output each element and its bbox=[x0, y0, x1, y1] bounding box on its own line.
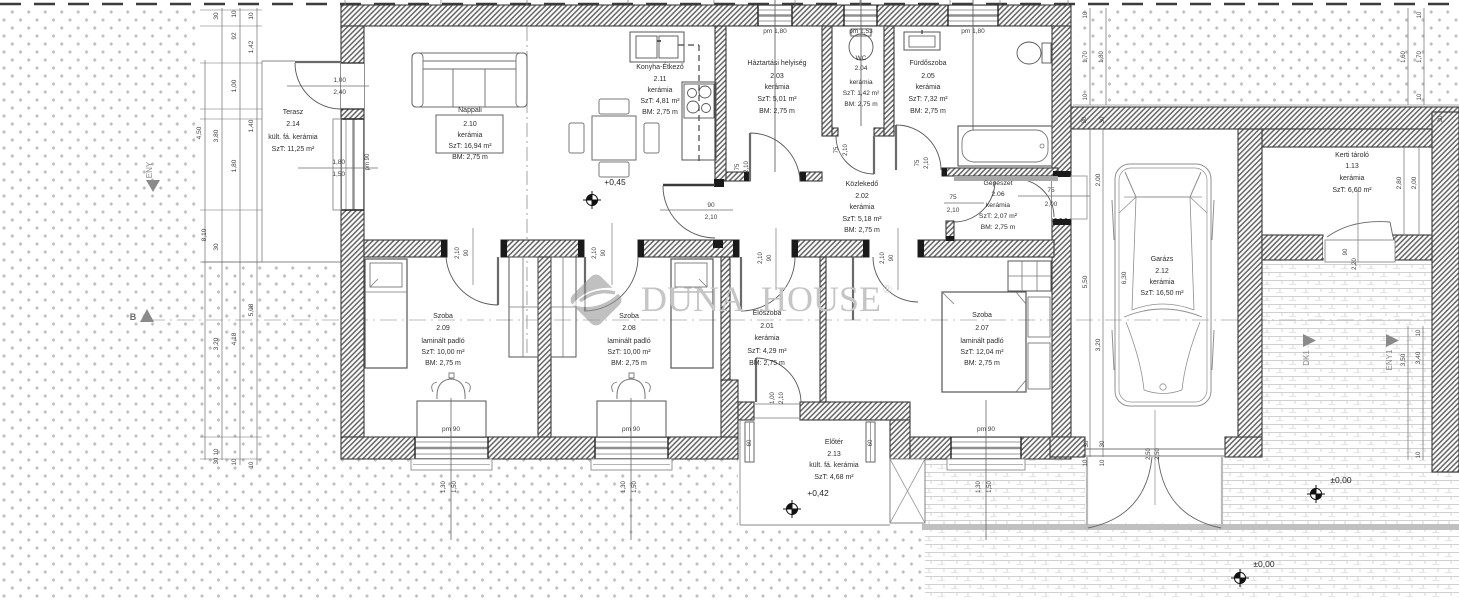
svg-text:2.13: 2.13 bbox=[827, 451, 841, 458]
svg-text:1,30: 1,30 bbox=[976, 481, 982, 493]
svg-text:1,60: 1,60 bbox=[1401, 51, 1407, 63]
svg-text:60: 60 bbox=[868, 439, 874, 446]
svg-text:1,70: 1,70 bbox=[1083, 51, 1089, 63]
svg-text:Szoba: Szoba bbox=[619, 313, 639, 320]
svg-text:1,80: 1,80 bbox=[1099, 51, 1105, 63]
svg-text:2.09: 2.09 bbox=[436, 325, 450, 332]
svg-text:laminált padló: laminált padló bbox=[421, 338, 464, 345]
svg-text:90: 90 bbox=[889, 254, 895, 261]
svg-text:1,00: 1,00 bbox=[333, 77, 346, 84]
svg-text:Nappali: Nappali bbox=[458, 107, 482, 114]
svg-text:75: 75 bbox=[915, 159, 921, 166]
svg-text:1,40: 1,40 bbox=[248, 119, 255, 132]
svg-text:kült. fá. kerámia: kült. fá. kerámia bbox=[268, 134, 318, 141]
svg-text:BM: 2,75 m: BM: 2,75 m bbox=[759, 108, 795, 115]
svg-text:DUNA: DUNA bbox=[641, 279, 745, 319]
svg-text:SzT: 5,18 m²: SzT: 5,18 m² bbox=[842, 216, 882, 223]
svg-text:75: 75 bbox=[735, 163, 741, 170]
svg-text:BM: 2,75 m: BM: 2,75 m bbox=[749, 360, 785, 367]
svg-text:BM: 2,75 m: BM: 2,75 m bbox=[964, 360, 1000, 367]
svg-text:ENY: ENY bbox=[145, 161, 154, 178]
svg-text:30: 30 bbox=[1100, 440, 1106, 447]
svg-text:kerámia: kerámia bbox=[1340, 175, 1365, 182]
svg-text:10: 10 bbox=[231, 10, 238, 18]
svg-text:B: B bbox=[130, 312, 137, 322]
svg-text:2.04: 2.04 bbox=[855, 65, 868, 72]
svg-text:SzT: 7,32 m²: SzT: 7,32 m² bbox=[908, 96, 948, 103]
svg-text:BM: 2,75 m: BM: 2,75 m bbox=[981, 224, 1016, 231]
svg-text:kült. fá. kerámia: kült. fá. kerámia bbox=[809, 462, 859, 469]
svg-text:±0,00: ±0,00 bbox=[1330, 475, 1351, 485]
svg-text:Garázs: Garázs bbox=[1151, 256, 1174, 263]
svg-text:2.06: 2.06 bbox=[991, 191, 1004, 198]
svg-text:kerámia: kerámia bbox=[648, 87, 673, 94]
svg-text:Közlekedő: Közlekedő bbox=[846, 181, 879, 188]
svg-text:Fürdőszoba: Fürdőszoba bbox=[910, 60, 947, 67]
svg-text:Kerti tároló: Kerti tároló bbox=[1335, 152, 1369, 159]
svg-text:Szoba: Szoba bbox=[972, 312, 992, 319]
svg-text:2,10: 2,10 bbox=[744, 161, 750, 173]
svg-text:2.08: 2.08 bbox=[622, 325, 636, 332]
svg-text:+0,45: +0,45 bbox=[604, 177, 626, 187]
svg-text:2,10: 2,10 bbox=[924, 157, 930, 169]
svg-text:Háztartási helyiség: Háztartási helyiség bbox=[747, 60, 806, 67]
svg-text:SzT: 16,94 m²: SzT: 16,94 m² bbox=[448, 143, 492, 150]
svg-text:kerámia: kerámia bbox=[755, 335, 780, 342]
svg-text:2,00: 2,00 bbox=[1045, 201, 1058, 208]
svg-text:10: 10 bbox=[1417, 93, 1423, 100]
svg-text:2,10: 2,10 bbox=[779, 392, 785, 404]
svg-text:30: 30 bbox=[213, 12, 220, 20]
svg-text:kerámia: kerámia bbox=[916, 84, 941, 91]
svg-text:10: 10 bbox=[1100, 459, 1106, 466]
svg-text:90: 90 bbox=[1343, 248, 1349, 255]
svg-text:laminált padló: laminált padló bbox=[960, 338, 1003, 345]
svg-text:Gépészet: Gépészet bbox=[983, 180, 1012, 187]
svg-text:90: 90 bbox=[601, 249, 607, 256]
svg-text:kerámia: kerámia bbox=[849, 79, 873, 86]
svg-text:10: 10 bbox=[1417, 11, 1423, 18]
svg-text:2.03: 2.03 bbox=[770, 73, 784, 80]
svg-text:BM: 2,75 m: BM: 2,75 m bbox=[844, 101, 877, 108]
svg-text:SzT: 1,42 m²: SzT: 1,42 m² bbox=[843, 90, 880, 97]
svg-text:BM: 2,75 m: BM: 2,75 m bbox=[452, 154, 488, 161]
svg-text:ENY1: ENY1 bbox=[1385, 349, 1394, 370]
svg-text:60: 60 bbox=[747, 439, 753, 446]
svg-text:2.12: 2.12 bbox=[1155, 268, 1169, 275]
svg-text:2,00: 2,00 bbox=[1095, 173, 1102, 186]
svg-text:10: 10 bbox=[214, 448, 220, 455]
svg-text:2.10: 2.10 bbox=[463, 121, 477, 128]
svg-text:90: 90 bbox=[767, 254, 773, 261]
svg-text:1,50: 1,50 bbox=[452, 481, 458, 493]
svg-text:30: 30 bbox=[1082, 116, 1088, 123]
svg-text:SzT: 5,01 m²: SzT: 5,01 m² bbox=[757, 96, 797, 103]
svg-text:SzT: 12,04 m²: SzT: 12,04 m² bbox=[960, 349, 1004, 356]
svg-text:kerámia: kerámia bbox=[850, 204, 875, 211]
svg-text:75: 75 bbox=[949, 194, 957, 201]
svg-text:10: 10 bbox=[1083, 11, 1089, 18]
svg-text:2,10: 2,10 bbox=[947, 207, 960, 214]
svg-text:1,70: 1,70 bbox=[1417, 51, 1423, 63]
svg-text:Terasz: Terasz bbox=[283, 109, 304, 116]
svg-text:4,50: 4,50 bbox=[196, 126, 203, 139]
svg-text:2,40: 2,40 bbox=[333, 89, 346, 96]
svg-text:Konyha-Étkező: Konyha-Étkező bbox=[636, 62, 684, 71]
svg-text:±0,00: ±0,00 bbox=[1253, 559, 1274, 569]
svg-text:75: 75 bbox=[834, 146, 840, 153]
svg-text:8,10: 8,10 bbox=[201, 228, 208, 241]
svg-text:kerámia: kerámia bbox=[765, 84, 790, 91]
svg-text:75: 75 bbox=[1047, 187, 1055, 194]
svg-text:kerámia: kerámia bbox=[458, 132, 483, 139]
svg-text:5,08: 5,08 bbox=[248, 303, 255, 316]
svg-text:BM: 2,75 m: BM: 2,75 m bbox=[844, 227, 880, 234]
svg-text:1,30: 1,30 bbox=[621, 481, 627, 493]
svg-text:10: 10 bbox=[1083, 93, 1089, 100]
svg-text:2,10: 2,10 bbox=[880, 252, 886, 264]
svg-text:2,10: 2,10 bbox=[592, 247, 598, 259]
svg-text:3,20: 3,20 bbox=[213, 337, 220, 350]
svg-text:®: ® bbox=[883, 282, 892, 296]
svg-text:SzT: 16,50 m²: SzT: 16,50 m² bbox=[1140, 290, 1184, 297]
svg-text:2.14: 2.14 bbox=[286, 121, 300, 128]
svg-text:2,50: 2,50 bbox=[1146, 448, 1152, 460]
svg-text:90: 90 bbox=[707, 202, 715, 209]
svg-text:kerámia: kerámia bbox=[1150, 279, 1175, 286]
svg-text:SzT: 4,68 m²: SzT: 4,68 m² bbox=[814, 474, 854, 481]
svg-text:2,10: 2,10 bbox=[843, 144, 849, 156]
svg-text:SzT: 11,25 m²: SzT: 11,25 m² bbox=[272, 146, 315, 153]
svg-text:10: 10 bbox=[1416, 451, 1422, 458]
svg-text:1,50: 1,50 bbox=[632, 481, 638, 493]
svg-text:2,10: 2,10 bbox=[455, 247, 461, 259]
svg-text:10: 10 bbox=[232, 458, 238, 465]
svg-text:2,10: 2,10 bbox=[758, 252, 764, 264]
svg-text:30: 30 bbox=[214, 457, 220, 464]
svg-text:1,42: 1,42 bbox=[248, 40, 255, 53]
svg-text:SzT: 4,29 m²: SzT: 4,29 m² bbox=[747, 348, 787, 355]
svg-text:1,80: 1,80 bbox=[332, 159, 345, 166]
svg-text:2,00: 2,00 bbox=[1411, 176, 1418, 189]
svg-text:30: 30 bbox=[1438, 115, 1444, 122]
svg-text:1.13: 1.13 bbox=[1345, 163, 1359, 170]
svg-text:2.07: 2.07 bbox=[975, 325, 989, 332]
svg-text:2,20: 2,20 bbox=[1352, 258, 1358, 270]
svg-text:1,30: 1,30 bbox=[441, 481, 447, 493]
svg-text:pm 90: pm 90 bbox=[365, 153, 371, 170]
svg-text:SzT: 10,00 m²: SzT: 10,00 m² bbox=[421, 349, 465, 356]
svg-text:2.02: 2.02 bbox=[855, 193, 869, 200]
svg-text:pm 1,80: pm 1,80 bbox=[763, 28, 787, 35]
svg-text:2.11: 2.11 bbox=[653, 76, 666, 83]
svg-text:2,10: 2,10 bbox=[705, 214, 718, 221]
svg-text:DK1: DK1 bbox=[1302, 350, 1311, 366]
svg-text:WC: WC bbox=[856, 55, 867, 62]
svg-text:BM: 2,75 m: BM: 2,75 m bbox=[611, 360, 647, 367]
svg-text:92: 92 bbox=[231, 32, 238, 40]
svg-text:BM: 2,75 m: BM: 2,75 m bbox=[425, 360, 461, 367]
svg-text:5,50: 5,50 bbox=[1082, 275, 1089, 288]
svg-text:laminált padló: laminált padló bbox=[607, 338, 650, 345]
svg-text:6,30: 6,30 bbox=[1121, 271, 1128, 284]
svg-text:2,50: 2,50 bbox=[1155, 448, 1161, 460]
svg-text:Szoba: Szoba bbox=[433, 313, 453, 320]
svg-text:10: 10 bbox=[249, 461, 255, 468]
svg-text:SzT: 10,00 m²: SzT: 10,00 m² bbox=[607, 349, 651, 356]
svg-text:pm 1,53: pm 1,53 bbox=[849, 28, 873, 35]
svg-text:1,80: 1,80 bbox=[231, 159, 238, 172]
svg-text:30: 30 bbox=[1100, 116, 1106, 123]
svg-text:Előtér: Előtér bbox=[825, 439, 844, 446]
svg-text:30: 30 bbox=[1084, 440, 1090, 447]
svg-text:90: 90 bbox=[464, 249, 470, 256]
svg-text:2.01: 2.01 bbox=[760, 323, 774, 330]
svg-text:10: 10 bbox=[1416, 329, 1422, 336]
svg-text:3,50: 3,50 bbox=[1400, 353, 1407, 366]
svg-text:SzT: 4,81 m²: SzT: 4,81 m² bbox=[640, 98, 680, 105]
svg-text:HOUSE: HOUSE bbox=[761, 279, 881, 319]
svg-text:SzT: 6,60 m²: SzT: 6,60 m² bbox=[1332, 187, 1372, 194]
svg-text:10: 10 bbox=[1083, 459, 1089, 466]
svg-text:30: 30 bbox=[213, 243, 220, 251]
svg-text:BM: 2,75 m: BM: 2,75 m bbox=[642, 109, 678, 116]
svg-text:1,50: 1,50 bbox=[987, 481, 993, 493]
svg-text:+0,42: +0,42 bbox=[807, 488, 829, 498]
svg-text:kerámia: kerámia bbox=[986, 202, 1010, 209]
svg-text:3,40: 3,40 bbox=[1415, 351, 1422, 364]
svg-text:1,00: 1,00 bbox=[770, 392, 776, 404]
svg-text:3,20: 3,20 bbox=[1095, 338, 1102, 351]
svg-text:1,50: 1,50 bbox=[332, 171, 345, 178]
svg-text:2.05: 2.05 bbox=[921, 73, 935, 80]
svg-text:pm 1,80: pm 1,80 bbox=[961, 28, 985, 35]
svg-text:BM: 2,75 m: BM: 2,75 m bbox=[910, 108, 946, 115]
svg-text:4,18: 4,18 bbox=[231, 332, 238, 345]
svg-text:10: 10 bbox=[248, 12, 255, 20]
svg-text:SzT: 2,07 m²: SzT: 2,07 m² bbox=[979, 213, 1018, 220]
svg-text:3,80: 3,80 bbox=[213, 129, 220, 142]
svg-text:1,00: 1,00 bbox=[231, 79, 238, 92]
svg-text:2,80: 2,80 bbox=[1396, 176, 1403, 189]
